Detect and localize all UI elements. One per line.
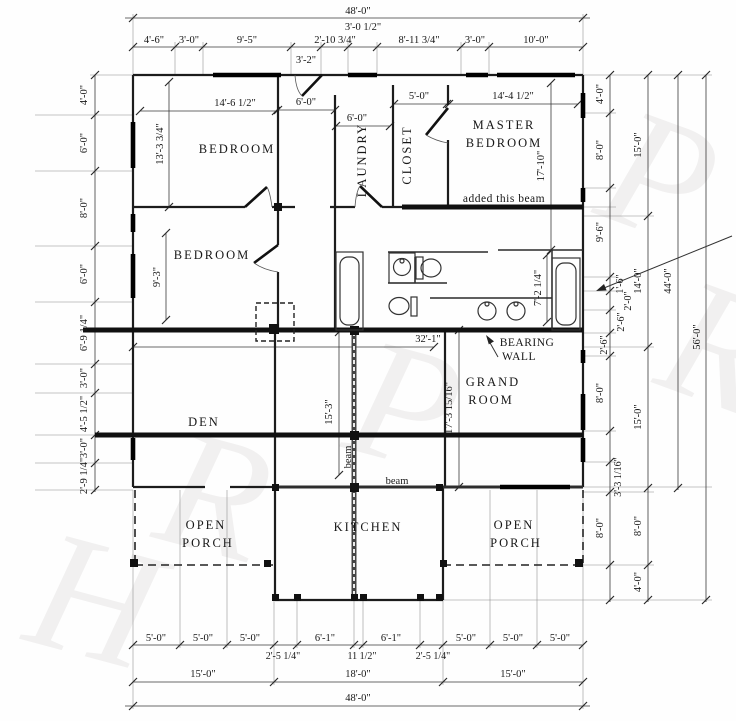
dim-label: 7'-2 1/4" <box>533 270 544 306</box>
dim-label: 5'-0" <box>240 633 260 644</box>
room-label-porch-left-1: OPEN <box>186 518 227 532</box>
dim-label: 3'-0" <box>465 35 485 46</box>
dim-label: 3'-2" <box>296 55 316 66</box>
room-label-porch-right-1: OPEN <box>494 518 535 532</box>
room-label-porch-right-2: PORCH <box>490 536 542 550</box>
bathtub-master <box>552 258 580 330</box>
dim-label: 3'-0" <box>79 368 90 388</box>
dim-label: 48'-0" <box>345 6 370 17</box>
dim-label: 5'-0" <box>550 633 570 644</box>
bearing-wall-arrowhead <box>486 335 494 344</box>
dim-label: 2'-5 1/4" <box>416 651 451 662</box>
bottom-dimension-labels: 5'-0" 5'-0" 5'-0" 2'-5 1/4" 6'-1" 11 1/2… <box>146 633 570 704</box>
room-label-porch-left-2: PORCH <box>182 536 234 550</box>
dim-label: 3'-0" <box>79 438 90 458</box>
dim-label: 32'-1" <box>415 334 440 345</box>
dim-label: 6'-1" <box>315 633 335 644</box>
dim-label: 14'-4 1/2" <box>492 91 533 102</box>
dim-label: 10'-0" <box>523 35 548 46</box>
watermark: P R P R H <box>9 70 736 709</box>
dim-label: 15'-0" <box>190 669 215 680</box>
dim-label: 4'-0" <box>633 572 644 592</box>
dim-label: 8'-0" <box>595 383 606 403</box>
room-label-bedroom-mid: BEDROOM <box>174 248 251 262</box>
note-beam-vertical: beam <box>343 446 354 469</box>
dim-label: 8'-11 3/4" <box>398 35 439 46</box>
sink-round <box>389 253 415 283</box>
dim-label: 9'-6" <box>595 222 606 242</box>
dim-label: 17'-3 15/16" <box>444 382 455 434</box>
dim-label: 6'-0" <box>79 264 90 284</box>
dim-label: 5'-0" <box>409 91 429 102</box>
dim-label: 6'-1" <box>381 633 401 644</box>
dim-label: 2'-6" <box>599 335 610 354</box>
room-label-grand-1: GRAND <box>466 375 520 389</box>
dim-label: 3'-0 1/2" <box>345 22 381 33</box>
dim-label: 9'-5" <box>237 35 257 46</box>
room-label-bedroom-top: BEDROOM <box>199 142 276 156</box>
floor-plan-svg: P R P R H <box>0 0 736 721</box>
dim-label: 44'-0" <box>663 268 674 293</box>
dim-label: 5'-0" <box>193 633 213 644</box>
dim-label: 8'-0" <box>595 518 606 538</box>
left-dimension-labels: 4'-0" 6'-0" 8'-0" 6'-0" 6'-9 1/4" 3'-0" … <box>79 85 90 494</box>
dim-label: 6'-0" <box>347 113 367 124</box>
dim-label: 4'-6" <box>144 35 164 46</box>
dim-label: 2'-9 1/4" <box>79 458 90 494</box>
top-dimension-labels: 48'-0" 3'-0 1/2" 4'-6" 3'-0" 9'-5" 2'-10… <box>144 6 549 66</box>
vanity-double-sinks <box>478 302 525 320</box>
dim-label: 4'-5 1/2" <box>79 396 90 432</box>
room-label-laundry: LAUNDRY <box>355 123 369 197</box>
dim-label: 14'-0" <box>633 268 644 293</box>
dim-label: 6'-0" <box>79 133 90 153</box>
dim-label: 5'-0" <box>456 633 476 644</box>
room-label-den: DEN <box>188 415 220 429</box>
room-label-master-1: MASTER <box>473 118 536 132</box>
dim-label: 56'-0" <box>692 324 703 349</box>
doors <box>245 75 448 272</box>
bathtub-hall <box>336 252 363 330</box>
tub-pointer-arrowhead <box>596 284 607 291</box>
dim-label: 5'-0" <box>503 633 523 644</box>
floor-plan-drawing: P R P R H <box>0 0 736 721</box>
note-beam-horizontal: beam <box>386 476 409 487</box>
room-label-kitchen: KITCHEN <box>334 520 403 534</box>
toilet-hall <box>416 257 441 279</box>
dim-label: 3'-0" <box>179 35 199 46</box>
dim-label: 17'-10" <box>536 151 547 182</box>
dim-label: 4'-0" <box>79 85 90 105</box>
dim-label: 11 1/2" <box>348 651 377 662</box>
dim-label: 1'-6" <box>615 274 626 293</box>
note-added-beam: added this beam <box>463 193 545 205</box>
dim-label: 15'-3" <box>324 399 335 424</box>
dim-label: 5'-0" <box>146 633 166 644</box>
dim-label: 2'-10 3/4" <box>314 35 355 46</box>
watermark-letter: H <box>9 493 186 709</box>
dim-label: 2'-5 1/4" <box>266 651 301 662</box>
dim-label: 8'-0" <box>633 516 644 536</box>
dim-label: 15'-0" <box>633 404 644 429</box>
dim-label: 6'-9 1/4" <box>79 315 90 351</box>
note-bearing-1: BEARING <box>500 337 555 349</box>
dim-label: 13'-3 3/4" <box>155 123 166 164</box>
dim-label: 14'-6 1/2" <box>214 98 255 109</box>
dim-label: 2'-6" <box>616 312 627 331</box>
dim-label: 4'-0" <box>595 84 606 104</box>
dim-label: 9'-3" <box>152 267 163 287</box>
dim-label: 6'-0" <box>296 97 316 108</box>
dim-label: 8'-0" <box>595 140 606 160</box>
dim-label: 15'-0" <box>500 669 525 680</box>
dim-label: 48'-0" <box>345 693 370 704</box>
dim-label: 15'-0" <box>633 132 644 157</box>
room-label-closet: CLOSET <box>400 125 414 184</box>
dim-label: 18'-0" <box>345 669 370 680</box>
dim-label: 8'-0" <box>79 198 90 218</box>
room-label-grand-2: ROOM <box>468 393 514 407</box>
note-bearing-2: WALL <box>502 351 536 363</box>
room-label-master-2: BEDROOM <box>466 136 543 150</box>
dim-label: 3'-3 1/16" <box>613 457 624 497</box>
